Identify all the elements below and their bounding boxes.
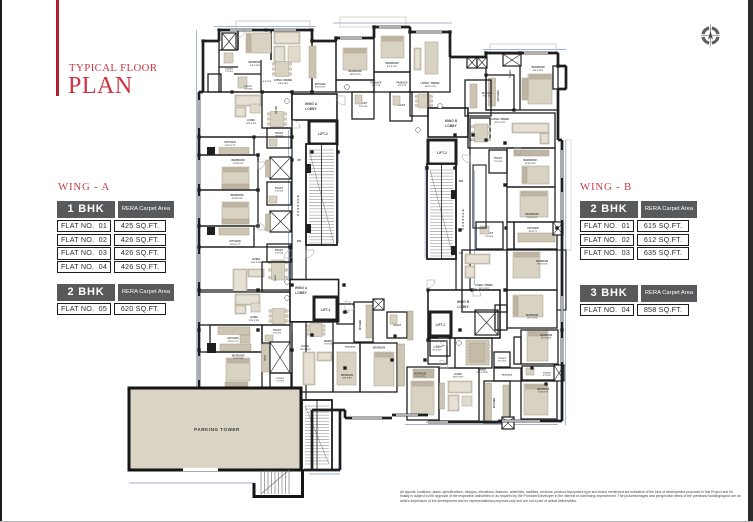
svg-text:LIVING / DINING: LIVING / DINING [491,118,509,121]
svg-text:7'3 X 4'1: 7'3 X 4'1 [275,252,284,255]
svg-text:LIVING: LIVING [301,345,309,348]
svg-text:BEDROOM: BEDROOM [231,159,244,162]
svg-text:LIVING / DINING: LIVING / DINING [420,82,439,85]
svg-text:LIFT-1: LIFT-1 [321,308,331,312]
svg-text:LIFT-2: LIFT-2 [437,151,447,155]
svg-text:PASS: PASS [274,275,277,281]
svg-text:20'7 X 10'7: 20'7 X 10'7 [494,122,506,124]
svg-text:9'2 X 11'6: 9'2 X 11'6 [250,65,260,67]
svg-text:10'2 X 9'6: 10'2 X 9'6 [249,320,260,322]
svg-text:DN: DN [297,239,301,243]
svg-text:2'11 X 10'10: 2'11 X 10'10 [476,372,488,374]
svg-text:KITCHEN: KITCHEN [497,90,500,101]
svg-text:11'10 X 7'1: 11'10 X 7'1 [225,145,237,147]
svg-text:BEDROOM: BEDROOM [248,61,261,64]
svg-text:LOBBY: LOBBY [295,291,307,295]
svg-text:BEDROOM: BEDROOM [373,348,385,350]
svg-text:10'0 X 12'0: 10'0 X 12'0 [349,74,361,76]
svg-text:4'1 X 3'0: 4'1 X 3'0 [398,84,407,87]
svg-text:LIFT-2: LIFT-2 [318,132,328,136]
svg-text:LIVING: LIVING [250,316,258,319]
svg-text:FOYER: FOYER [276,106,278,114]
svg-text:PARKING TOWER: PARKING TOWER [194,427,240,432]
svg-text:BEDROOM: BEDROOM [531,66,544,69]
svg-text:10'2 X 9'6: 10'2 X 9'6 [246,123,257,125]
svg-text:7'2 X 4'4: 7'2 X 4'4 [244,87,253,90]
svg-text:11'7 X 10'9: 11'7 X 10'9 [537,263,548,265]
svg-text:8'7 X 4'7: 8'7 X 4'7 [498,359,507,362]
svg-text:LIVING / DINING: LIVING / DINING [274,79,292,82]
svg-text:9'9 X 16'0: 9'9 X 16'0 [278,83,289,85]
svg-text:WING B: WING B [457,300,470,304]
svg-text:WING A: WING A [295,286,308,290]
svg-text:BEDROOM: BEDROOM [230,194,243,197]
svg-text:20'7 X 10'7: 20'7 X 10'7 [479,288,490,290]
svg-text:7'3 X 4'1: 7'3 X 4'1 [275,135,284,138]
svg-text:LIVING: LIVING [247,119,255,122]
svg-text:4'1 X 5'10: 4'1 X 5'10 [433,348,443,351]
svg-text:LIFT-1: LIFT-1 [436,323,446,327]
svg-text:KITCHEN: KITCHEN [315,83,326,86]
svg-text:LOBBY: LOBBY [305,107,317,111]
svg-text:LOBBY: LOBBY [457,305,469,309]
svg-text:LIVING / DINING: LIVING / DINING [475,285,493,287]
svg-text:9'1 X 12'1: 9'1 X 12'1 [415,376,425,378]
svg-text:WING B: WING B [445,119,458,123]
svg-text:8'0 X 11'0: 8'0 X 11'0 [533,70,543,72]
svg-text:11'10 X 8'9: 11'10 X 8'9 [232,198,244,200]
svg-text:8'11 X 10'7: 8'11 X 10'7 [315,87,326,89]
svg-text:12'12 X 8'9: 12'12 X 8'9 [524,163,536,165]
svg-text:7'3 X 4'1: 7'3 X 4'1 [276,379,285,382]
svg-text:11'10 X 8'9: 11'10 X 8'9 [233,358,244,360]
svg-text:11'12 X 8'1: 11'12 X 8'1 [233,163,245,165]
svg-text:5'2 X 3'0: 5'2 X 3'0 [372,85,381,87]
svg-text:11'7 X 10'9: 11'7 X 10'9 [541,337,552,339]
svg-text:11'10 X 8'9: 11'10 X 8'9 [538,391,549,393]
svg-text:7'3 X 4'1: 7'3 X 4'1 [275,190,284,193]
svg-text:PASSAGE: PASSAGE [502,374,513,377]
svg-text:BEDROOM: BEDROOM [523,159,536,162]
svg-text:DN: DN [459,179,463,183]
svg-text:10'0 X 17'4: 10'0 X 17'4 [424,85,436,88]
svg-text:TOILET: TOILET [510,69,512,78]
svg-text:LOBBY: LOBBY [445,124,457,128]
svg-text:PASSAGE: PASSAGE [461,208,465,229]
svg-text:TOILET: TOILET [500,313,502,321]
svg-text:11'7 X 10'9: 11'7 X 10'9 [527,317,538,319]
svg-text:10'2 X 10'0: 10'2 X 10'0 [299,349,311,351]
svg-text:8'7 X 4'7: 8'7 X 4'7 [543,374,552,377]
svg-text:PASSAGE: PASSAGE [345,346,356,349]
svg-text:PASSAGE: PASSAGE [296,194,300,215]
svg-text:7'3 X 4'1: 7'3 X 4'1 [225,70,234,73]
svg-text:7'1 X 10'5: 7'1 X 10'5 [482,96,492,98]
svg-text:10'2 X 9'6: 10'2 X 9'6 [251,262,262,264]
svg-text:7'0 X 4'0: 7'0 X 4'0 [494,160,503,163]
svg-text:12'12 X 8'9: 12'12 X 8'9 [526,217,538,219]
svg-text:TOILET: TOILET [494,158,503,160]
svg-text:11'10 X 7'1: 11'10 X 7'1 [230,244,242,246]
svg-text:7'2 X 4'6: 7'2 X 4'6 [485,235,494,238]
svg-text:BEDROOM: BEDROOM [525,213,538,216]
svg-text:7'0 X 4'0: 7'0 X 4'0 [359,105,368,108]
svg-text:8'1 X 11'0: 8'1 X 11'0 [387,66,397,68]
svg-text:WING A: WING A [305,102,318,106]
svg-text:10'0 X 8'6: 10'0 X 8'6 [342,378,352,380]
svg-text:11'10 X 7'1: 11'10 X 7'1 [228,341,240,343]
svg-text:LIVING: LIVING [252,258,260,261]
svg-text:BEDROOM: BEDROOM [348,70,361,73]
svg-text:KITCHEN: KITCHEN [527,227,538,230]
svg-text:KITCHEN: KITCHEN [227,337,238,340]
svg-text:1'0 X 8'4: 1'0 X 8'4 [324,343,333,346]
svg-text:16'0 X 21'5: 16'0 X 21'5 [453,376,464,378]
svg-text:UP: UP [297,158,301,162]
svg-text:WASH: WASH [264,354,267,361]
svg-text:KITCHEN: KITCHEN [224,141,235,144]
svg-text:KITCHEN: KITCHEN [229,240,240,243]
svg-text:8'3 X 6'6: 8'3 X 6'6 [263,81,272,83]
svg-text:TOILET: TOILET [393,325,402,327]
svg-text:8'0 X 7'1: 8'0 X 7'1 [529,231,538,233]
svg-text:KITCHEN: KITCHEN [494,398,496,409]
svg-text:BEDROOM: BEDROOM [385,62,398,65]
svg-text:KITCHEN: KITCHEN [360,320,362,331]
svg-text:7'2 X 4'1: 7'2 X 4'1 [273,332,282,335]
